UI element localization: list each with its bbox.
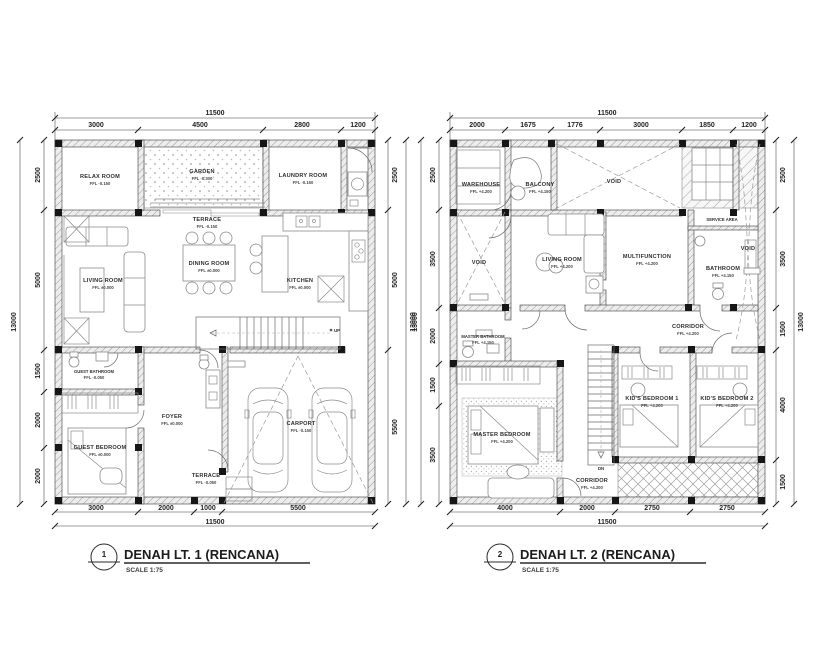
room-label: DINING ROOM (189, 261, 230, 267)
dim-label: 5500 (290, 505, 306, 512)
masterbath-door-arc (522, 311, 540, 329)
dim-label: 2750 (719, 505, 735, 512)
ffl-label: FFL +4.150 (472, 340, 494, 345)
ffl-label: FFL ±0.000 (92, 285, 114, 290)
dim-label: 13000 (11, 312, 18, 332)
plan1: UP (11, 110, 417, 574)
plan1-titleblock: 1 DENAH LT. 1 (RENCANA) SCALE 1:75 (88, 544, 310, 574)
dim-label: 1776 (567, 122, 583, 129)
ffl-label: FFL +4.150 (529, 189, 551, 194)
ffl-label: FFL +4.200 (636, 261, 658, 266)
dim-label: 5000 (35, 272, 42, 288)
dim-label: 3500 (430, 447, 437, 463)
sink-2 (487, 344, 499, 353)
toilet (69, 357, 79, 367)
room-label: SERVICE AREA (706, 217, 737, 222)
ffl-label: FFL -0.150 (293, 180, 314, 185)
room-label: VOID (607, 179, 621, 185)
room-label: KID'S BEDROOM 2 (700, 396, 753, 402)
car-2 (309, 388, 355, 492)
plan-scale: SCALE 1:75 (126, 567, 163, 574)
kid2-wardrobe (697, 366, 747, 379)
ffl-label: FFL -0.300 (192, 176, 213, 181)
tag-2 (470, 294, 488, 300)
desk (488, 478, 554, 498)
dim-label: 5000 (392, 272, 399, 288)
room-label: GUEST BATHROOM (74, 369, 114, 374)
toilet (713, 289, 724, 300)
dim-label: 11500 (205, 519, 224, 526)
room-label: VOID (741, 246, 755, 252)
kid2-chair (733, 383, 747, 397)
dim-label: 2000 (469, 122, 485, 129)
kid1-bed (620, 405, 678, 447)
dim-label: 11500 (597, 110, 616, 117)
dim-label: 3500 (780, 251, 787, 267)
room-label: CARPORT (286, 421, 315, 427)
mf-door-arc (565, 308, 587, 330)
dim-label: 1500 (35, 363, 42, 379)
dim-label: 2800 (294, 122, 310, 129)
car-1 (245, 388, 291, 492)
ffl-label: FFL -0.050 (84, 375, 105, 380)
washer (348, 172, 367, 196)
shower (745, 240, 756, 268)
ottoman (586, 276, 603, 293)
dim-label: 5500 (392, 419, 399, 435)
dim-label: 2000 (430, 328, 437, 344)
room-label: CORRIDOR (672, 324, 704, 330)
island (262, 236, 288, 292)
dim-label: 3000 (633, 122, 649, 129)
dim-label: 1200 (741, 122, 757, 129)
title-number: 1 (102, 550, 107, 559)
ffl-label: FFL +4.200 (551, 264, 573, 269)
ffl-label: FFL ±0.000 (161, 421, 183, 426)
room-label: WAREHOUSE (462, 182, 501, 188)
plan1-stairs: UP (196, 317, 340, 349)
room-label: MASTER BEDROOM (473, 432, 530, 438)
dim-label: 2750 (644, 505, 660, 512)
dim-label: 13000 (412, 312, 419, 332)
kid2-bed (700, 405, 758, 447)
void-top (557, 144, 680, 208)
room-label: BATHROOM (706, 266, 740, 272)
wardrobe (456, 366, 540, 384)
dim-label: 2500 (780, 167, 787, 183)
room-label: KITCHEN (287, 278, 313, 284)
ffl-label: FFL -0.150 (90, 181, 111, 186)
dim-label: 2000 (35, 412, 42, 428)
room-label: MASTER BATHROOM (461, 334, 505, 339)
dim-label: 2500 (430, 167, 437, 183)
ffl-label: FFL -0.150 (197, 224, 218, 229)
ffl-label: FFL +4.200 (581, 485, 603, 490)
stair-up-label: UP (334, 328, 340, 333)
sofa-2 (124, 252, 145, 332)
tag (744, 268, 760, 274)
plan-scale: SCALE 1:75 (522, 567, 559, 574)
void-left (457, 212, 505, 304)
chaise (584, 235, 604, 273)
room-label: RELAX ROOM (80, 174, 120, 180)
dim-label: 3500 (430, 251, 437, 267)
room-label: VOID (472, 260, 486, 266)
dim-label: 13000 (798, 312, 805, 332)
stair-dn-label: DN (598, 466, 604, 471)
ffl-label: FFL ±0.000 (198, 268, 220, 273)
tag (228, 361, 245, 367)
ffl-label: FFL +4.150 (712, 273, 734, 278)
kid1-wardrobe (622, 366, 672, 379)
room-label: BALCONY (525, 182, 554, 188)
drawing-sheet: UP (0, 0, 821, 670)
room-label: KID'S BEDROOM 1 (625, 396, 678, 402)
sofa (548, 214, 604, 235)
dim-label: 2500 (392, 167, 399, 183)
ffl-label: FFL +4.200 (641, 403, 663, 408)
shelf (456, 150, 500, 204)
skylight-grid (692, 148, 733, 200)
planter (511, 186, 525, 200)
sink (695, 236, 705, 246)
title-number: 2 (498, 550, 503, 559)
dim-label: 11500 (597, 519, 616, 526)
room-label: MULTIFUNCTION (623, 254, 671, 260)
dim-label: 1500 (780, 474, 787, 490)
toilet-2 (199, 359, 209, 369)
ffl-label: FFL +4.200 (677, 331, 699, 336)
room-label: LIVING ROOM (542, 257, 582, 263)
room-label: TERRACE (193, 217, 222, 223)
toilet-2 (463, 347, 474, 358)
kid1-chair (631, 383, 645, 397)
ffl-label: FFL +4.200 (470, 189, 492, 194)
dim-label: 1500 (780, 321, 787, 337)
sink (96, 352, 108, 361)
plan2-stairs: DN (588, 345, 614, 471)
room-label: TERRACE (192, 473, 221, 479)
room-label: FOYER (162, 414, 182, 420)
dim-label: 1500 (430, 377, 437, 393)
dim-label: 2000 (158, 505, 174, 512)
desk-chair (507, 465, 529, 479)
tv-console (80, 268, 104, 312)
ffl-label: FFL ±0.000 (89, 452, 111, 457)
side-cabinet (540, 408, 554, 452)
dim-label: 2000 (35, 468, 42, 484)
dim-label: 4000 (497, 505, 513, 512)
ffl-label: FFL +4.200 (491, 439, 513, 444)
ffl-label: FFL +4.200 (716, 403, 738, 408)
wardrobe (62, 393, 138, 413)
kid1-door-arc (640, 353, 658, 371)
plan-title: DENAH LT. 1 (RENCANA) (124, 547, 279, 562)
dim-label: 3000 (88, 505, 104, 512)
dim-label: 2500 (35, 167, 42, 183)
dim-label: 4500 (192, 122, 208, 129)
room-label: LAUNDRY ROOM (279, 173, 328, 179)
room-label: GARDEN (189, 169, 214, 175)
room-label: LIVING ROOM (83, 278, 123, 284)
plan2: DN (237, 0, 805, 574)
dim-label: 1850 (699, 122, 715, 129)
room-label: GUEST BEDROOM (74, 445, 127, 451)
chair (186, 232, 198, 244)
dim-label: 1000 (200, 505, 216, 512)
kid2-door-arc (712, 333, 732, 353)
dim-label: 3000 (88, 122, 104, 129)
dim-label: 2000 (579, 505, 595, 512)
dim-label: 1675 (520, 122, 536, 129)
floor-plan-canvas: UP (0, 0, 821, 670)
plan2-titleblock: 2 DENAH LT. 2 (RENCANA) SCALE 1:75 (484, 544, 706, 574)
plan-title: DENAH LT. 2 (RENCANA) (520, 547, 675, 562)
ffl-label: FFL -0.050 (196, 480, 217, 485)
ffl-label: FFL ±0.000 (289, 285, 311, 290)
tile-hatch (618, 460, 758, 497)
ffl-label: FFL -0.150 (291, 428, 312, 433)
dim-label: 1200 (350, 122, 366, 129)
dim-label: 11500 (205, 110, 224, 117)
room-label: CORRIDOR (576, 478, 608, 484)
dim-label: 4000 (780, 397, 787, 413)
